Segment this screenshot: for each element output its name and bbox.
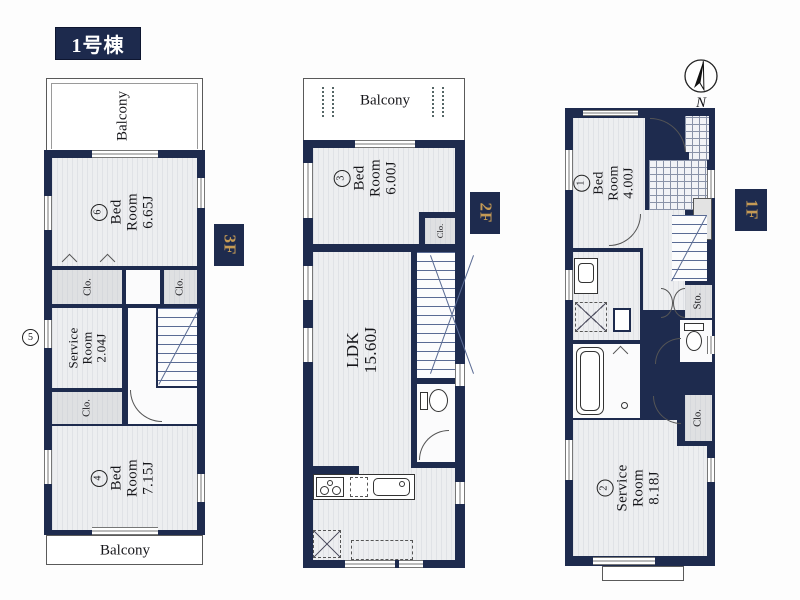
drain bbox=[621, 402, 628, 409]
floorplan-page: 1号棟 Balcony Balcony bbox=[0, 0, 800, 600]
floor-tag-1f: 1F bbox=[735, 189, 767, 231]
closet-doorway bbox=[126, 270, 160, 304]
balcony-label: Balcony bbox=[360, 93, 410, 110]
window bbox=[707, 170, 715, 198]
window bbox=[44, 196, 52, 230]
room-number-badge: 4 bbox=[91, 470, 108, 487]
storage-label: Sto. bbox=[693, 293, 704, 310]
sink-icon bbox=[373, 478, 410, 496]
room-ldk bbox=[313, 252, 411, 560]
window bbox=[583, 110, 638, 116]
burner bbox=[320, 486, 329, 495]
window bbox=[707, 458, 715, 482]
balcony-label: Balcony bbox=[100, 543, 150, 560]
window bbox=[197, 474, 205, 502]
washing-machine-space bbox=[575, 302, 607, 332]
window bbox=[92, 150, 158, 158]
room-number-badge: 3 bbox=[334, 170, 351, 187]
closet-label: Clo. bbox=[83, 278, 94, 296]
room-label-ldk: LDK 15.60J bbox=[344, 327, 380, 374]
wall bbox=[645, 152, 689, 160]
floor-plan-1f: 1 Bed Room 4.00J 2 Service Room 8.18J St… bbox=[565, 108, 715, 580]
window bbox=[345, 560, 395, 568]
floor-tag-2f: 2F bbox=[470, 192, 500, 234]
refrigerator-space bbox=[313, 530, 341, 558]
window bbox=[303, 163, 313, 218]
window bbox=[303, 266, 313, 300]
closet-label: Clo. bbox=[175, 278, 186, 296]
window bbox=[44, 450, 52, 484]
toilet-icon bbox=[420, 392, 428, 410]
terrace-step bbox=[602, 566, 684, 581]
balcony-2f: Balcony bbox=[303, 78, 465, 142]
room-number-badge: 1 bbox=[573, 175, 590, 192]
bathtub-icon bbox=[576, 347, 604, 415]
stair-diagonal bbox=[158, 308, 199, 384]
faucet bbox=[399, 481, 405, 487]
floor-plan-2f: Balcony bbox=[303, 78, 465, 568]
window bbox=[565, 270, 573, 300]
closet-label: Clo. bbox=[82, 399, 93, 417]
window bbox=[197, 178, 205, 208]
burner bbox=[327, 480, 333, 486]
kitchen-partition bbox=[313, 466, 359, 474]
floor-tag-3f: 3F bbox=[214, 224, 244, 266]
compass-icon bbox=[682, 57, 720, 95]
room-label-bedroom-1: 1 Bed Room 4.00J bbox=[573, 165, 636, 200]
balcony-3f-top: Balcony bbox=[46, 78, 203, 152]
window bbox=[44, 320, 52, 348]
room-number-badge: 6 bbox=[91, 204, 108, 221]
closet-label: Clo. bbox=[693, 409, 704, 427]
stove-icon bbox=[316, 477, 344, 497]
balcony-lattice bbox=[322, 87, 334, 117]
room-label-service-1f: 2 Service Room 8.18J bbox=[597, 464, 664, 511]
washbasin-icon bbox=[574, 258, 598, 294]
room-label-bedroom-6: 6 Bed Room 6.65J bbox=[91, 193, 158, 231]
stairs bbox=[158, 308, 197, 386]
window bbox=[355, 140, 415, 148]
kitchen-open-space bbox=[350, 477, 368, 497]
floor-plan-3f: Balcony Balcony 6 Be bbox=[44, 78, 205, 565]
room-number-badge-service-3f: 5 bbox=[22, 329, 39, 346]
burner bbox=[332, 486, 341, 495]
window bbox=[455, 364, 465, 386]
toilet-icon bbox=[686, 331, 702, 351]
basin-bowl bbox=[578, 263, 594, 283]
stairs bbox=[417, 252, 455, 378]
balcony-lattice bbox=[432, 87, 444, 117]
window bbox=[565, 150, 573, 190]
stairs bbox=[672, 215, 707, 281]
window bbox=[593, 557, 655, 565]
toilet-icon bbox=[684, 323, 704, 331]
balcony-3f-bottom: Balcony bbox=[46, 535, 203, 565]
room-ldk-kitchen bbox=[411, 468, 455, 560]
stair-diagonal bbox=[671, 216, 707, 282]
room-number-badge: 2 bbox=[597, 480, 614, 497]
window bbox=[707, 336, 715, 354]
window bbox=[303, 328, 313, 362]
room-label-bedroom-4: 4 Bed Room 7.15J bbox=[91, 459, 158, 497]
water-heater bbox=[613, 308, 631, 332]
closet-label: Clo. bbox=[435, 224, 445, 238]
room-label-service-3f: Service Room 2.04J bbox=[66, 327, 107, 368]
counter-space bbox=[351, 540, 413, 560]
room-label-bedroom-3: 3 Bed Room 6.00J bbox=[334, 159, 401, 197]
building-title: 1号棟 bbox=[55, 27, 141, 60]
toilet-icon bbox=[429, 389, 448, 412]
tub-inner bbox=[580, 351, 600, 411]
window bbox=[565, 440, 573, 480]
window bbox=[92, 527, 158, 535]
window bbox=[455, 482, 465, 504]
balcony-label: Balcony bbox=[115, 91, 132, 141]
door-opening bbox=[399, 560, 423, 568]
